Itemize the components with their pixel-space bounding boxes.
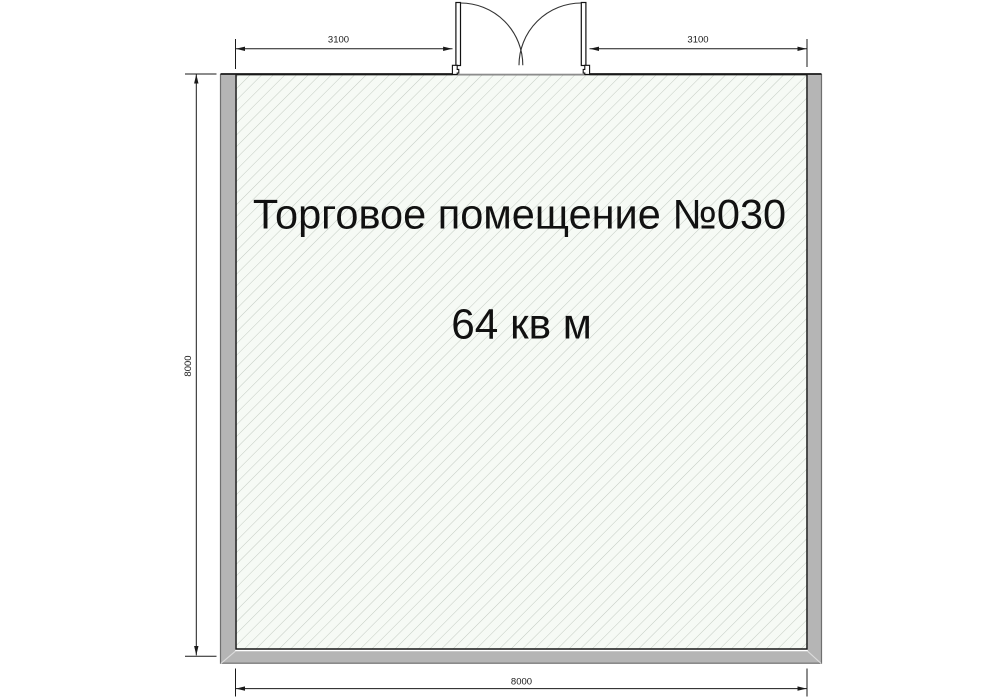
- svg-text:3100: 3100: [328, 34, 349, 45]
- svg-text:Торговое помещение №030: Торговое помещение №030: [253, 191, 786, 238]
- svg-text:8000: 8000: [183, 355, 194, 376]
- svg-text:8000: 8000: [511, 676, 532, 687]
- svg-text:64 кв м: 64 кв м: [451, 301, 592, 348]
- svg-text:3100: 3100: [687, 34, 708, 45]
